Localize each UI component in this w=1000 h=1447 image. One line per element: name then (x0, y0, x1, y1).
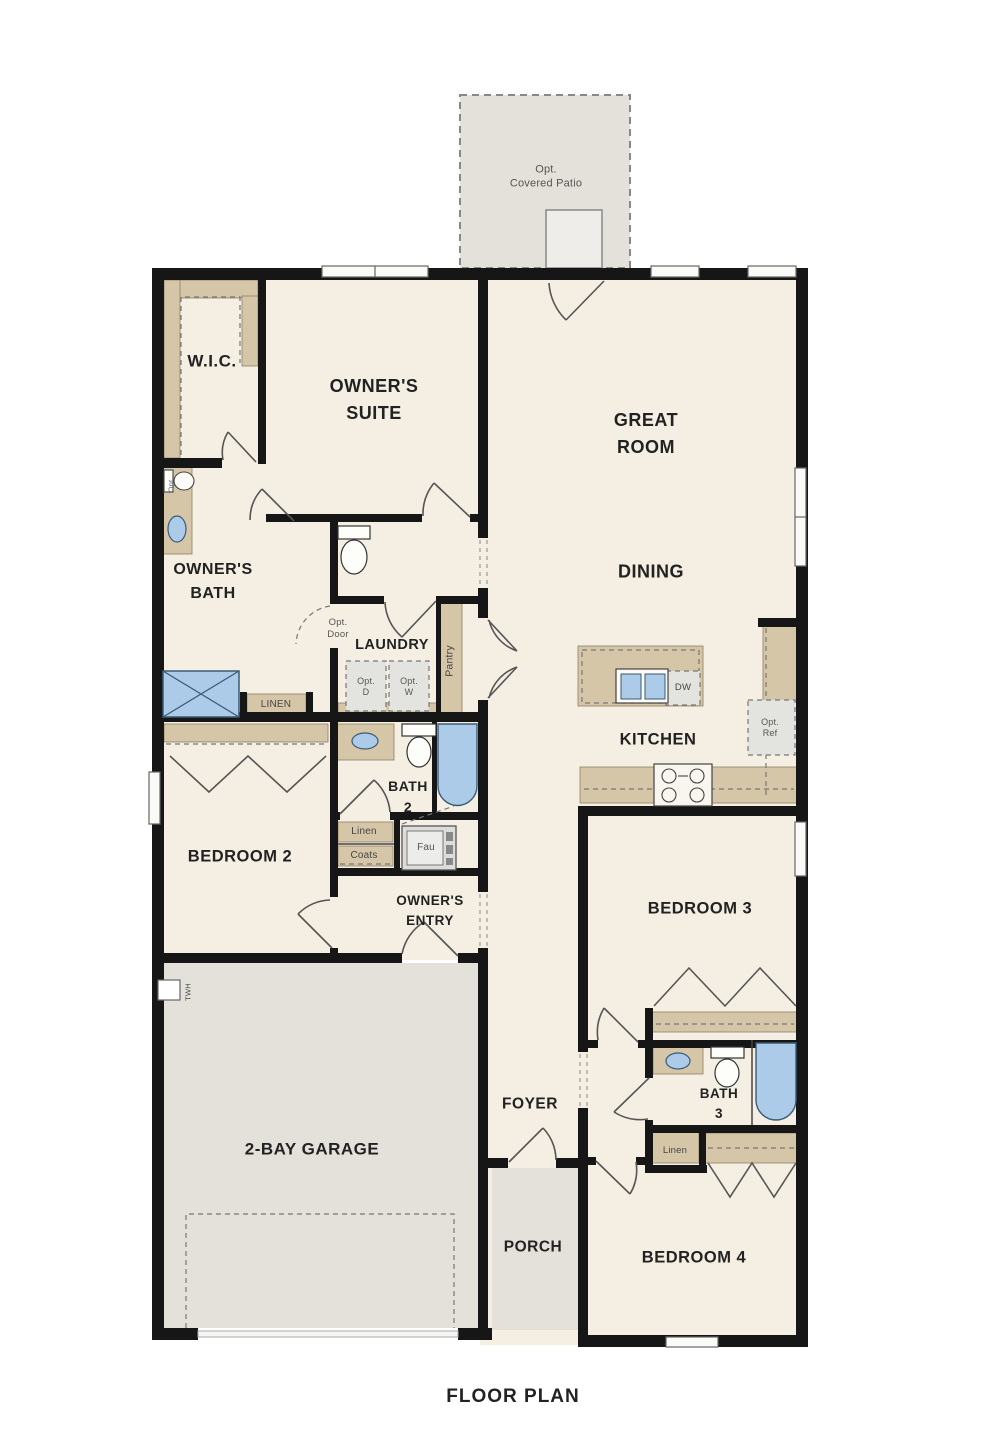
kitchen-counter-right (763, 625, 798, 701)
label-dining: DINING (618, 559, 684, 586)
island-sink-icon (616, 669, 668, 703)
label-covered-patio: Opt. Covered Patio (510, 163, 582, 191)
label-owners-linen: LINEN (261, 699, 291, 712)
label-twh: TWH (183, 983, 192, 1001)
wic-shelf-right (242, 296, 258, 366)
label-bedroom4: BEDROOM 4 (642, 1246, 746, 1271)
label-kitchen: KITCHEN (620, 728, 697, 753)
bath3-tub-icon (756, 1043, 796, 1120)
window-bedroom4 (666, 1337, 718, 1347)
label-porch: PORCH (504, 1235, 562, 1258)
bath3-sink-icon (666, 1053, 690, 1069)
owners-toilet-icon (338, 526, 370, 574)
window-great-room-2 (748, 266, 796, 277)
label-pantry: Pantry (443, 645, 456, 677)
label-bedroom2: BEDROOM 2 (188, 845, 292, 870)
wic-shelf-left (164, 280, 180, 458)
patio-step (546, 210, 602, 268)
label-bath3: BATH 3 (700, 1084, 739, 1125)
label-furnace: Fau (417, 842, 435, 855)
label-owners-suite: OWNER'S SUITE (330, 373, 419, 427)
tankless-water-heater-icon (158, 980, 180, 1000)
label-wic: W.I.C. (187, 348, 236, 374)
label-opt-ref: Opt. Ref (761, 717, 779, 740)
floor-plan: Opt. Covered Patio W.I.C. OWNER'S SUITE … (0, 0, 1000, 1447)
label-opt-toilet: Opt (166, 480, 175, 493)
stove-icon (654, 764, 712, 806)
label-garage: 2-BAY GARAGE (245, 1136, 379, 1162)
label-bath2: BATH 2 (388, 776, 428, 818)
label-laundry: LAUNDRY (355, 635, 429, 657)
page-title: FLOOR PLAN (446, 1383, 580, 1412)
label-bedroom3: BEDROOM 3 (648, 897, 752, 922)
label-foyer: FOYER (502, 1092, 558, 1115)
label-linen3: Linen (663, 1145, 687, 1157)
bedroom3-closet-shelf (652, 1012, 798, 1032)
floor-plan-drawing (0, 0, 1000, 1447)
label-opt-washer: Opt. W (400, 676, 418, 699)
owners-bath-sink-icon (168, 516, 186, 542)
label-owners-bath: OWNER'S BATH (173, 558, 252, 606)
window-bedroom3 (795, 822, 806, 876)
label-dishwasher: DW (675, 682, 691, 694)
label-great-room: GREAT ROOM (614, 407, 678, 461)
label-coats: Coats (350, 850, 377, 863)
label-opt-door: Opt. Door (327, 617, 348, 641)
window-bedroom2 (149, 772, 160, 824)
bath2-sink-icon (352, 733, 378, 749)
label-linen-hall: Linen (351, 826, 376, 839)
garage-door-opening (198, 1331, 458, 1337)
bedroom2-closet-shelf (164, 724, 328, 742)
bath2-tub-icon (438, 724, 477, 806)
label-owners-entry: OWNER'S ENTRY (396, 891, 463, 932)
window-great-room-1 (651, 266, 699, 277)
label-opt-dryer: Opt. D (357, 676, 375, 699)
